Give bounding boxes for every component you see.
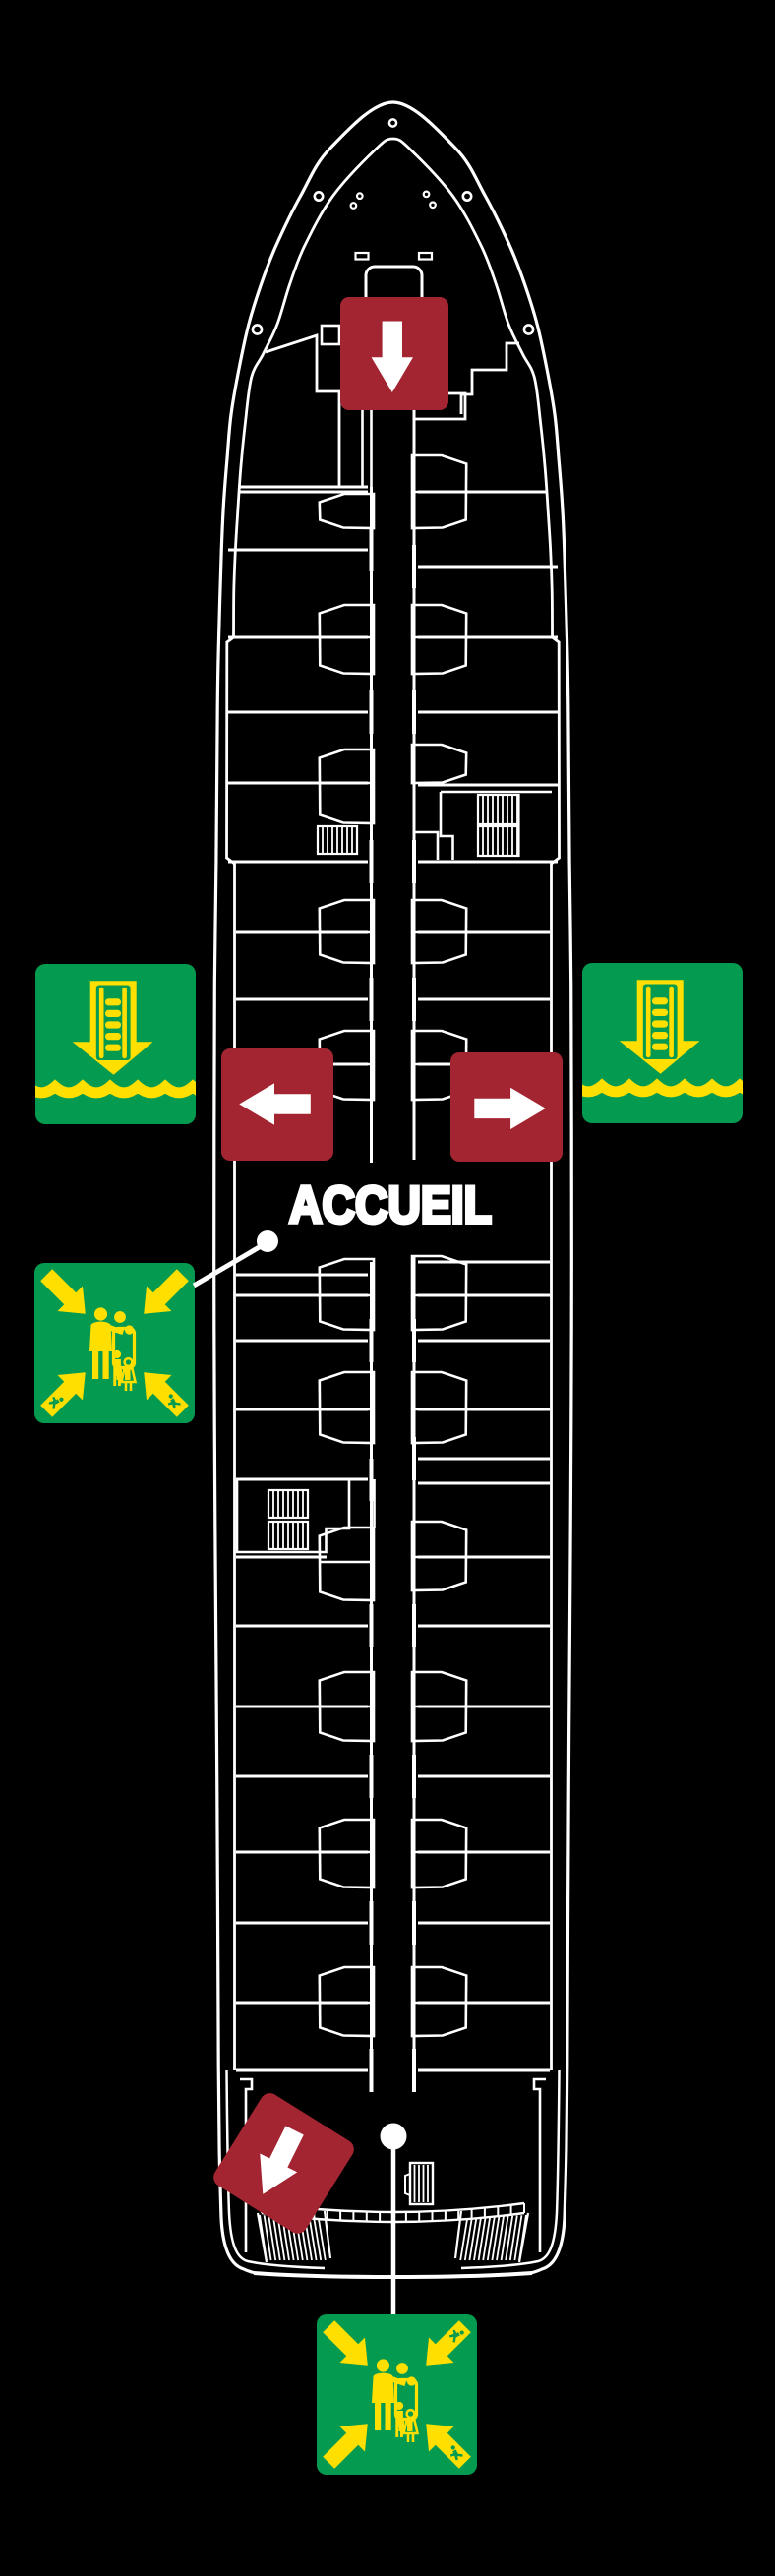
svg-text:ACCUEIL: ACCUEIL xyxy=(289,1176,492,1234)
